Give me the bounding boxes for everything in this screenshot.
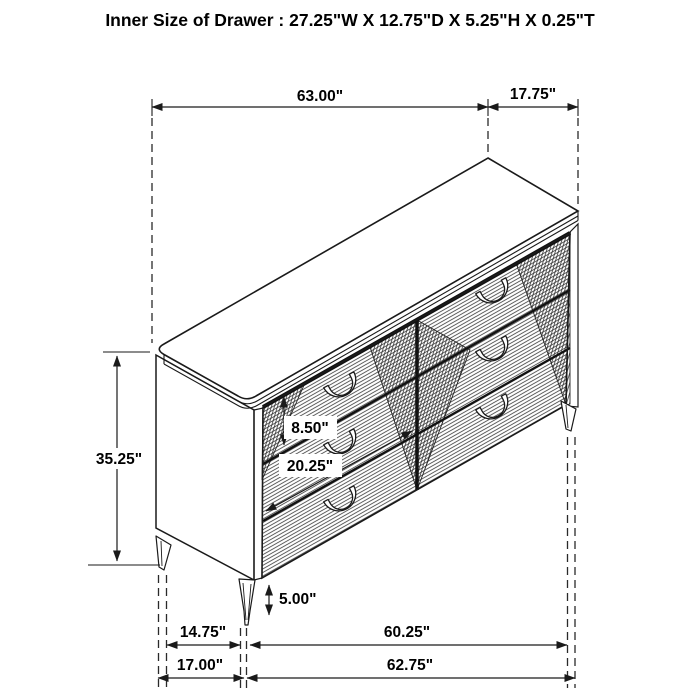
top-width-label: 63.00" [297,88,343,105]
leg-height-label: 5.00" [279,591,317,608]
drawer-height-label: 8.50" [291,420,329,437]
overall-height-label: 35.25" [96,451,142,468]
front-leg-span-dimension: 60.25" [250,624,567,645]
top-width-dimension: 63.00" [152,88,488,107]
base-depth-label: 17.00" [177,657,223,674]
drawer-face [262,233,570,578]
leg-height-dimension: 5.00" [269,585,317,615]
base-width-dimension: 62.75" [247,657,575,678]
dresser-dimension-drawing: Inner Size of Drawer : 27.25"W X 12.75"D… [0,0,700,700]
base-width-label: 62.75" [387,657,433,674]
top-depth-label: 17.75" [510,86,556,103]
side-leg-span-dimension: 14.75" [167,624,240,645]
overall-height-dimension: 35.25" [89,356,149,561]
drawer-width-label: 20.25" [287,458,333,475]
dimension-diagram: Inner Size of Drawer : 27.25"W X 12.75"D… [0,0,700,700]
side-leg-span-label: 14.75" [180,624,226,641]
top-depth-dimension: 17.75" [488,86,578,107]
front-leg-span-label: 60.25" [384,624,430,641]
diagram-title: Inner Size of Drawer : 27.25"W X 12.75"D… [105,10,595,30]
front-left-leg [239,579,255,625]
dresser-illustration [156,158,578,625]
base-depth-dimension: 17.00" [158,657,244,678]
front-right-leg [561,401,576,431]
